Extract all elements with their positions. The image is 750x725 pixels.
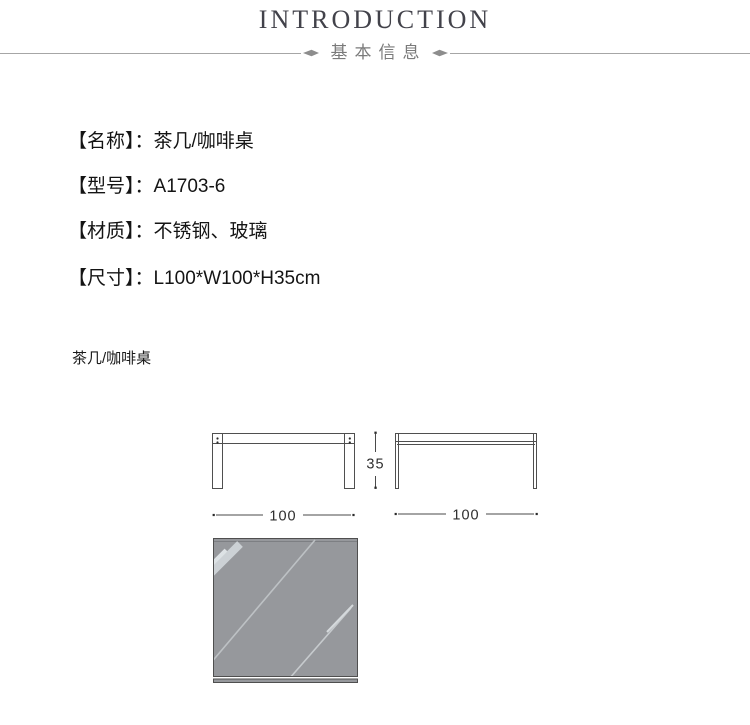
front-width-dimension: 100 bbox=[213, 509, 355, 525]
field-separator: ： bbox=[135, 268, 154, 289]
field-separator: ： bbox=[135, 131, 154, 152]
top-view-glass bbox=[206, 539, 358, 683]
field-value: L100*W100*H35cm bbox=[154, 268, 321, 289]
divider-line-left bbox=[0, 53, 301, 54]
field-label: 【名称】 bbox=[68, 131, 135, 152]
product-field-name: 【名称】：茶几/咖啡桌 bbox=[68, 131, 320, 153]
product-field-material: 【材质】：不锈钢、玻璃 bbox=[68, 221, 320, 243]
technical-drawing: 35 100 100 bbox=[0, 420, 750, 720]
product-caption: 茶几/咖啡桌 bbox=[72, 347, 151, 368]
side-width-dimension: 100 bbox=[395, 508, 538, 524]
page-title: INTRODUCTION bbox=[0, 5, 750, 35]
side-width-dimension-label: 100 bbox=[452, 508, 479, 524]
field-value: 不锈钢、玻璃 bbox=[154, 221, 268, 242]
height-dimension-label: 35 bbox=[366, 457, 384, 473]
diamond-icon-left bbox=[303, 49, 319, 57]
diamond-icon-right bbox=[432, 49, 448, 57]
front-width-dimension-label: 100 bbox=[269, 509, 296, 525]
field-separator: ： bbox=[135, 176, 154, 197]
glass-edge-strip bbox=[214, 679, 358, 683]
section-subheader: 基本信息 bbox=[0, 44, 750, 62]
divider-line-right bbox=[450, 53, 750, 54]
field-label: 【材质】 bbox=[68, 221, 135, 242]
side-view bbox=[396, 434, 537, 489]
height-dimension: 35 bbox=[366, 432, 384, 489]
field-value: A1703-6 bbox=[154, 176, 226, 197]
product-info-list: 【名称】：茶几/咖啡桌 【型号】：A1703-6 【材质】：不锈钢、玻璃 【尺寸… bbox=[68, 131, 320, 290]
field-value: 茶几/咖啡桌 bbox=[154, 131, 254, 152]
field-separator: ： bbox=[135, 221, 154, 242]
product-field-model: 【型号】：A1703-6 bbox=[68, 176, 320, 198]
section-subtitle: 基本信息 bbox=[331, 44, 427, 62]
field-label: 【型号】 bbox=[68, 176, 135, 197]
product-field-size: 【尺寸】：L100*W100*H35cm bbox=[68, 268, 320, 290]
front-view bbox=[213, 434, 355, 489]
field-label: 【尺寸】 bbox=[68, 268, 135, 289]
